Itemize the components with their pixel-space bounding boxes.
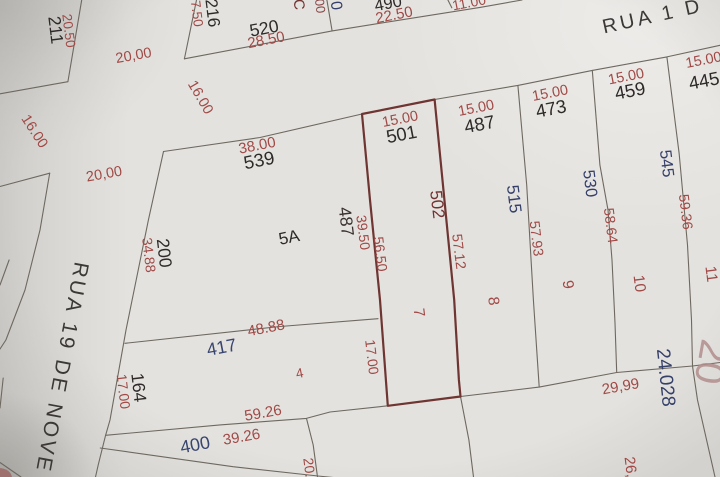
svg-text:502: 502 bbox=[426, 189, 448, 219]
svg-text:11: 11 bbox=[701, 265, 720, 283]
svg-text:545: 545 bbox=[656, 149, 677, 179]
svg-text:7.50: 7.50 bbox=[188, 0, 206, 28]
svg-text:C: C bbox=[290, 0, 308, 11]
svg-text:20.: 20. bbox=[300, 457, 318, 477]
svg-text:515: 515 bbox=[503, 184, 525, 214]
svg-text:530: 530 bbox=[579, 169, 600, 199]
svg-text:00: 00 bbox=[312, 0, 329, 14]
svg-text:10: 10 bbox=[630, 274, 649, 294]
svg-text:26,: 26, bbox=[621, 456, 640, 477]
